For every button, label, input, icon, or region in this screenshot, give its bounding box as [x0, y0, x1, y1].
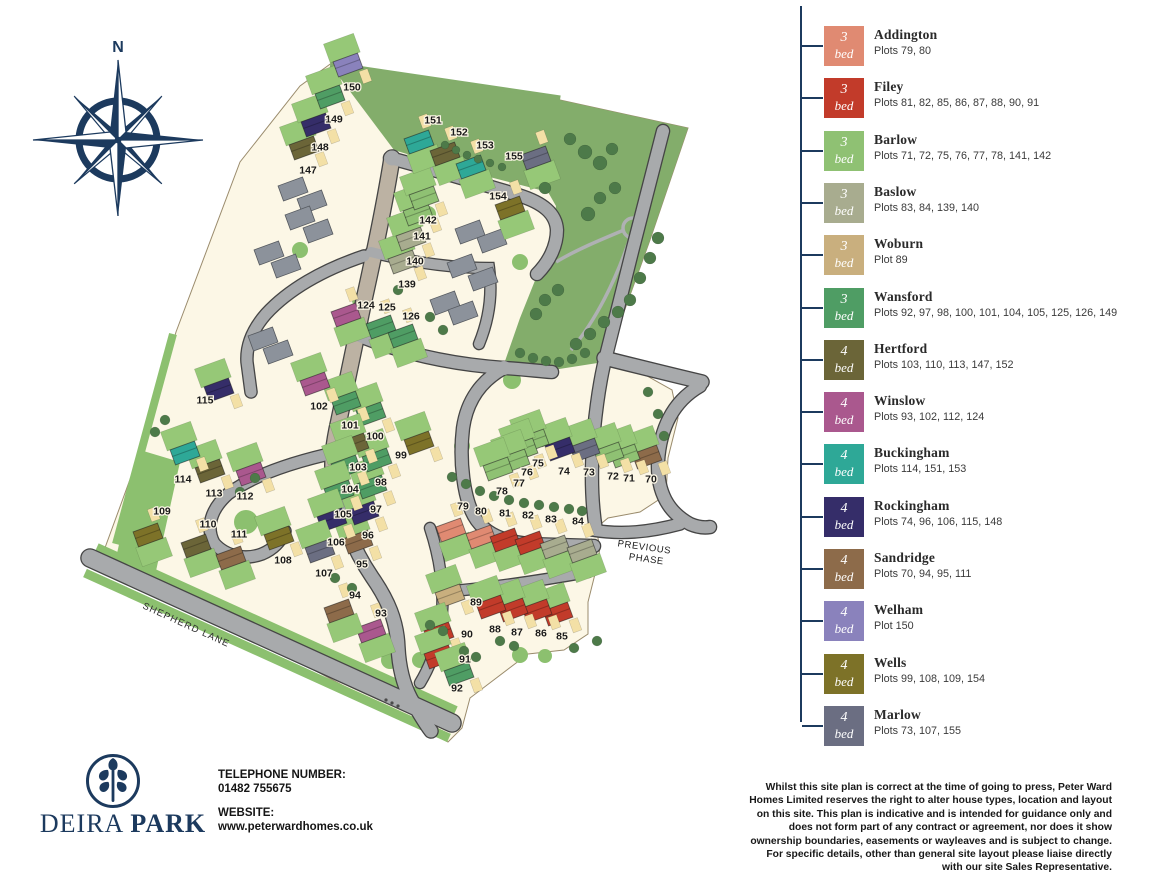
legend-bed-count: 4	[824, 659, 864, 673]
plot-number-151: 151	[424, 115, 442, 127]
plot-number-91: 91	[459, 654, 471, 666]
plot-number-80: 80	[475, 506, 487, 518]
plot-number-112: 112	[237, 491, 254, 503]
plot-number-97: 97	[370, 504, 382, 516]
plot-number-114: 114	[175, 474, 192, 486]
website-url: www.peterwardhomes.co.uk	[218, 820, 373, 834]
plot-number-147: 147	[299, 165, 317, 177]
legend-bed-word: bed	[824, 413, 864, 426]
plot-number-72: 72	[607, 471, 619, 483]
plot-number-89: 89	[470, 597, 482, 609]
plot-number-86: 86	[535, 628, 547, 640]
legend-swatch: 4bed	[824, 601, 864, 641]
plot-number-109: 109	[153, 506, 171, 518]
plot-number-82: 82	[522, 510, 534, 522]
plot-number-108: 108	[274, 555, 292, 567]
legend-bed-word: bed	[824, 204, 864, 217]
legend-tick	[802, 150, 823, 152]
plot-number-77: 77	[513, 478, 525, 490]
legend-bed-count: 3	[824, 188, 864, 202]
legend-item-marlow: 4bedMarlowPlots 73, 107, 155	[800, 706, 1160, 752]
legend-bed-word: bed	[824, 518, 864, 531]
development-name-word1: DEIRA	[40, 809, 123, 838]
legend-bed-word: bed	[824, 570, 864, 583]
legend-bed-count: 4	[824, 397, 864, 411]
legend-plot-numbers: Plots 81, 82, 85, 86, 87, 88, 90, 91	[874, 97, 1039, 109]
legend-bed-word: bed	[824, 152, 864, 165]
plot-number-71: 71	[623, 473, 635, 485]
legend-tick	[802, 97, 823, 99]
disclaimer-text: Whilst this site plan is correct at the …	[748, 781, 1112, 875]
legend-bed-word: bed	[824, 675, 864, 688]
legend-item-hertford: 4bedHertfordPlots 103, 110, 113, 147, 15…	[800, 340, 1160, 386]
legend-house-type-name: Hertford	[874, 341, 927, 357]
legend-bed-word: bed	[824, 47, 864, 60]
legend-swatch: 4bed	[824, 340, 864, 380]
legend-plot-numbers: Plots 92, 97, 98, 100, 101, 104, 105, 12…	[874, 307, 1117, 319]
legend-swatch: 4bed	[824, 444, 864, 484]
legend-house-type-name: Woburn	[874, 236, 923, 252]
legend-item-buckingham: 4bedBuckinghamPlots 114, 151, 153	[800, 444, 1160, 490]
legend-swatch: 3bed	[824, 26, 864, 66]
plot-number-148: 148	[311, 142, 329, 154]
plot-number-149: 149	[325, 114, 343, 126]
plot-number-124: 124	[357, 300, 375, 312]
legend-bed-word: bed	[824, 256, 864, 269]
legend-swatch: 4bed	[824, 497, 864, 537]
plot-number-73: 73	[583, 467, 595, 479]
plot-number-115: 115	[197, 395, 214, 407]
plot-number-94: 94	[349, 590, 361, 602]
plot-number-113: 113	[206, 488, 223, 500]
plot-number-104: 104	[341, 484, 359, 496]
deira-park-logo	[84, 752, 142, 810]
plot-number-140: 140	[406, 256, 424, 268]
legend-plot-numbers: Plots 83, 84, 139, 140	[874, 202, 979, 214]
legend-swatch: 4bed	[824, 549, 864, 589]
legend-swatch: 4bed	[824, 706, 864, 746]
plot-number-79: 79	[457, 501, 469, 513]
legend-bed-word: bed	[824, 361, 864, 374]
house-type-legend: 3bedAddingtonPlots 79, 803bedFileyPlots …	[800, 0, 1165, 770]
plot-number-84: 84	[572, 516, 584, 528]
legend-house-type-name: Barlow	[874, 132, 917, 148]
plot-number-99: 99	[395, 450, 407, 462]
legend-bed-word: bed	[824, 465, 864, 478]
legend-tick	[802, 359, 823, 361]
legend-swatch: 4bed	[824, 654, 864, 694]
legend-item-filey: 3bedFileyPlots 81, 82, 85, 86, 87, 88, 9…	[800, 78, 1160, 124]
legend-bed-count: 3	[824, 83, 864, 97]
legend-swatch: 4bed	[824, 392, 864, 432]
legend-plot-numbers: Plots 103, 110, 113, 147, 152	[874, 359, 1013, 371]
plot-number-106: 106	[327, 537, 345, 549]
legend-house-type-name: Winslow	[874, 393, 925, 409]
website-label: WEBSITE:	[218, 806, 373, 820]
legend-item-baslow: 3bedBaslowPlots 83, 84, 139, 140	[800, 183, 1160, 229]
legend-item-woburn: 3bedWoburnPlot 89	[800, 235, 1160, 281]
plot-number-83: 83	[545, 514, 557, 526]
plot-number-153: 153	[476, 140, 494, 152]
legend-house-type-name: Wansford	[874, 289, 933, 305]
plot-number-100: 100	[366, 431, 384, 443]
legend-plot-numbers: Plot 89	[874, 254, 908, 266]
plot-number-90: 90	[461, 629, 473, 641]
legend-tick	[802, 254, 823, 256]
legend-swatch: 3bed	[824, 183, 864, 223]
legend-tick	[802, 620, 823, 622]
plot-number-107: 107	[315, 568, 333, 580]
legend-plot-numbers: Plot 150	[874, 620, 914, 632]
legend-bed-count: 4	[824, 502, 864, 516]
legend-house-type-name: Rockingham	[874, 498, 950, 514]
legend-tick	[802, 568, 823, 570]
legend-bed-count: 4	[824, 449, 864, 463]
legend-house-type-name: Welham	[874, 602, 923, 618]
legend-house-type-name: Buckingham	[874, 445, 950, 461]
legend-swatch: 3bed	[824, 235, 864, 275]
legend-bed-count: 3	[824, 136, 864, 150]
legend-item-addington: 3bedAddingtonPlots 79, 80	[800, 26, 1160, 72]
legend-plot-numbers: Plots 70, 94, 95, 111	[874, 568, 971, 580]
legend-item-sandridge: 4bedSandridgePlots 70, 94, 95, 111	[800, 549, 1160, 595]
legend-house-type-name: Filey	[874, 79, 904, 95]
legend-plot-numbers: Plots 114, 151, 153	[874, 463, 966, 475]
legend-item-wansford: 3bedWansfordPlots 92, 97, 98, 100, 101, …	[800, 288, 1160, 334]
plot-number-111: 111	[231, 529, 248, 541]
plot-number-85: 85	[556, 631, 568, 643]
legend-tick	[802, 307, 823, 309]
plot-number-103: 103	[349, 462, 367, 474]
plot-number-102: 102	[310, 401, 328, 413]
legend-plot-numbers: Plots 71, 72, 75, 76, 77, 78, 141, 142	[874, 150, 1051, 162]
legend-swatch: 3bed	[824, 288, 864, 328]
legend-plot-numbers: Plots 73, 107, 155	[874, 725, 961, 737]
site-plan-map: 7071727374757677787980818283848586878889…	[55, 30, 720, 760]
legend-tick	[802, 202, 823, 204]
plot-number-92: 92	[451, 683, 463, 695]
plot-number-75: 75	[532, 458, 544, 470]
legend-bed-count: 4	[824, 345, 864, 359]
legend-swatch: 3bed	[824, 78, 864, 118]
legend-house-type-name: Baslow	[874, 184, 916, 200]
legend-tick	[802, 45, 823, 47]
plot-number-155: 155	[505, 151, 523, 163]
legend-plot-numbers: Plots 74, 96, 106, 115, 148	[874, 516, 1002, 528]
plot-number-141: 141	[413, 231, 431, 243]
plot-number-70: 70	[645, 474, 657, 486]
legend-bed-count: 3	[824, 293, 864, 307]
legend-item-barlow: 3bedBarlowPlots 71, 72, 75, 76, 77, 78, …	[800, 131, 1160, 177]
plot-number-101: 101	[341, 420, 359, 432]
legend-item-welham: 4bedWelhamPlot 150	[800, 601, 1160, 647]
plot-number-110: 110	[200, 519, 217, 531]
legend-bed-word: bed	[824, 99, 864, 112]
plot-number-139: 139	[398, 279, 416, 291]
contact-block: TELEPHONE NUMBER: 01482 755675 WEBSITE: …	[218, 768, 373, 834]
plot-number-154: 154	[489, 191, 507, 203]
plot-number-98: 98	[375, 477, 387, 489]
plot-number-105: 105	[334, 509, 352, 521]
legend-tick	[802, 673, 823, 675]
plot-number-78: 78	[496, 486, 508, 498]
logo-tree-icon	[99, 758, 127, 802]
legend-bed-word: bed	[824, 622, 864, 635]
development-name: DEIRA PARK	[38, 809, 208, 839]
plot-number-74: 74	[558, 466, 570, 478]
plot-number-88: 88	[489, 624, 501, 636]
legend-bed-word: bed	[824, 727, 864, 740]
legend-bed-count: 4	[824, 606, 864, 620]
legend-tick	[802, 463, 823, 465]
legend-house-type-name: Marlow	[874, 707, 921, 723]
legend-item-wells: 4bedWellsPlots 99, 108, 109, 154	[800, 654, 1160, 700]
site-plan-page: { "compass": {"north_label": "N"}, "colo…	[0, 0, 1165, 874]
legend-item-rockingham: 4bedRockinghamPlots 74, 96, 106, 115, 14…	[800, 497, 1160, 543]
legend-item-winslow: 4bedWinslowPlots 93, 102, 112, 124	[800, 392, 1160, 438]
plot-number-81: 81	[499, 508, 511, 520]
phone-label: TELEPHONE NUMBER:	[218, 768, 373, 782]
legend-bed-count: 3	[824, 240, 864, 254]
plot-number-142: 142	[419, 215, 437, 227]
legend-tick	[802, 516, 823, 518]
legend-house-type-name: Wells	[874, 655, 907, 671]
plot-number-152: 152	[450, 127, 468, 139]
legend-bed-count: 4	[824, 554, 864, 568]
legend-tick	[802, 725, 823, 727]
legend-plot-numbers: Plots 99, 108, 109, 154	[874, 673, 985, 685]
plot-number-95: 95	[356, 559, 368, 571]
legend-bed-count: 3	[824, 31, 864, 45]
plot-number-150: 150	[343, 82, 361, 94]
legend-bed-count: 4	[824, 711, 864, 725]
legend-bed-word: bed	[824, 309, 864, 322]
legend-plot-numbers: Plots 93, 102, 112, 124	[874, 411, 984, 423]
legend-plot-numbers: Plots 79, 80	[874, 45, 931, 57]
legend-house-type-name: Addington	[874, 27, 937, 43]
plot-number-126: 126	[402, 311, 420, 323]
legend-house-type-name: Sandridge	[874, 550, 935, 566]
plot-number-93: 93	[375, 608, 387, 620]
plot-number-125: 125	[378, 302, 396, 314]
legend-swatch: 3bed	[824, 131, 864, 171]
development-name-word2: PARK	[130, 809, 206, 838]
plot-number-87: 87	[511, 627, 523, 639]
phone-number: 01482 755675	[218, 782, 373, 796]
legend-tick	[802, 411, 823, 413]
plot-number-96: 96	[362, 530, 374, 542]
